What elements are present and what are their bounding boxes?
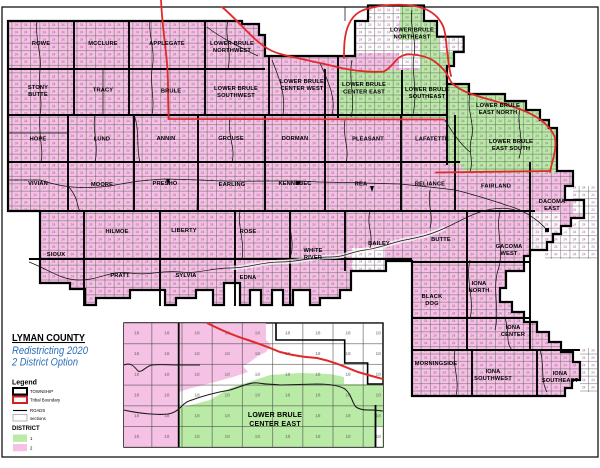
svg-text:IONA: IONA <box>506 325 521 331</box>
svg-text:LAFATETTE: LAFATETTE <box>415 137 449 143</box>
svg-text:HOPE: HOPE <box>30 137 47 143</box>
svg-text:Legend: Legend <box>12 379 37 386</box>
svg-text:ROADS: ROADS <box>30 408 45 413</box>
svg-text:REA: REA <box>355 182 367 188</box>
svg-text:BRULE: BRULE <box>161 89 181 95</box>
svg-text:LOWER BRULE: LOWER BRULE <box>390 28 434 34</box>
svg-text:IONA: IONA <box>486 369 501 375</box>
svg-text:RIVER: RIVER <box>304 255 322 261</box>
svg-text:CENTER EAST: CENTER EAST <box>249 421 301 428</box>
svg-text:PLEASANT: PLEASANT <box>352 137 384 143</box>
svg-text:LOWER BRULE: LOWER BRULE <box>342 82 386 88</box>
svg-text:IONA: IONA <box>472 281 487 287</box>
svg-text:BAILEY: BAILEY <box>368 241 390 247</box>
svg-text:MOORE: MOORE <box>91 182 113 188</box>
svg-text:NORTHWEST: NORTHWEST <box>213 48 251 54</box>
svg-text:EDNA: EDNA <box>240 275 257 281</box>
svg-text:EAST SOUTH: EAST SOUTH <box>492 146 530 152</box>
svg-text:ANNIN: ANNIN <box>157 136 176 142</box>
svg-text:CENTER EAST: CENTER EAST <box>343 90 385 96</box>
svg-text:WHITE: WHITE <box>303 248 322 254</box>
svg-text:EARLING: EARLING <box>219 182 246 188</box>
svg-text:DISTRICT: DISTRICT <box>12 426 40 432</box>
svg-text:TOWNSHIP: TOWNSHIP <box>30 389 53 394</box>
svg-text:NORTHEAST: NORTHEAST <box>394 35 431 41</box>
svg-text:DORMAN: DORMAN <box>282 136 309 142</box>
svg-text:EAST: EAST <box>544 206 560 212</box>
svg-text:LYMAN COUNTY: LYMAN COUNTY <box>12 332 85 344</box>
svg-text:IONA: IONA <box>553 371 568 377</box>
svg-text:2 District Option: 2 District Option <box>11 357 78 369</box>
svg-text:DOG: DOG <box>425 301 439 307</box>
svg-text:FAIRLAND: FAIRLAND <box>481 184 511 190</box>
svg-text:LOWER BRULE: LOWER BRULE <box>214 86 258 92</box>
svg-text:ROSE: ROSE <box>240 229 257 235</box>
svg-text:LOWER BRULE: LOWER BRULE <box>476 103 520 109</box>
svg-text:LIBERTY: LIBERTY <box>171 228 196 234</box>
svg-text:TRACY: TRACY <box>93 88 113 94</box>
svg-text:GROUSE: GROUSE <box>218 136 244 142</box>
svg-text:MCCLURE: MCCLURE <box>88 41 118 47</box>
svg-text:APPLEGATE: APPLEGATE <box>149 41 185 47</box>
svg-text:LOWER BRULE: LOWER BRULE <box>280 79 324 85</box>
svg-text:PRATT: PRATT <box>110 273 130 279</box>
svg-text:LOWER BRULE: LOWER BRULE <box>210 41 254 47</box>
svg-text:SOUTHEAST: SOUTHEAST <box>409 94 446 100</box>
svg-text:VIVIAN: VIVIAN <box>28 181 48 187</box>
svg-text:SOUTHWEST: SOUTHWEST <box>474 376 512 382</box>
svg-text:Tribal Boundary: Tribal Boundary <box>30 398 61 403</box>
svg-text:CENTER: CENTER <box>501 332 525 338</box>
svg-text:GACOMA: GACOMA <box>496 244 523 250</box>
svg-text:CENTER WEST: CENTER WEST <box>280 86 323 92</box>
svg-text:LOWER BRULE: LOWER BRULE <box>489 139 533 145</box>
svg-text:RELIANCE: RELIANCE <box>415 182 445 188</box>
svg-text:SOUTHEAST: SOUTHEAST <box>542 378 579 384</box>
svg-text:STONY: STONY <box>28 85 48 91</box>
svg-text:LUND: LUND <box>94 137 110 143</box>
svg-text:BLACK: BLACK <box>422 294 443 300</box>
svg-text:SIOUX: SIOUX <box>47 252 66 258</box>
svg-text:BUTTE: BUTTE <box>431 237 451 243</box>
svg-text:PRESHO: PRESHO <box>153 181 178 187</box>
svg-text:SYLVIA: SYLVIA <box>175 273 196 279</box>
svg-text:SOUTHWEST: SOUTHWEST <box>217 93 255 99</box>
svg-text:WEST: WEST <box>500 251 517 257</box>
svg-text:LOWER BRULE: LOWER BRULE <box>405 87 449 93</box>
svg-text:DACOMA: DACOMA <box>539 199 566 205</box>
svg-text:Redistricting 2020: Redistricting 2020 <box>12 345 88 357</box>
svg-text:LOWER BRULE: LOWER BRULE <box>248 412 302 419</box>
svg-text:EAST NORTH: EAST NORTH <box>479 110 517 116</box>
svg-text:HILMOE: HILMOE <box>105 229 128 235</box>
svg-text:NORTH: NORTH <box>469 288 490 294</box>
svg-text:KENNEBEC: KENNEBEC <box>278 181 311 187</box>
svg-text:sections: sections <box>30 416 46 421</box>
svg-text:MORNINGSIDE: MORNINGSIDE <box>415 361 457 367</box>
svg-text:BUTTE: BUTTE <box>28 92 48 98</box>
svg-text:ROWE: ROWE <box>32 41 50 47</box>
